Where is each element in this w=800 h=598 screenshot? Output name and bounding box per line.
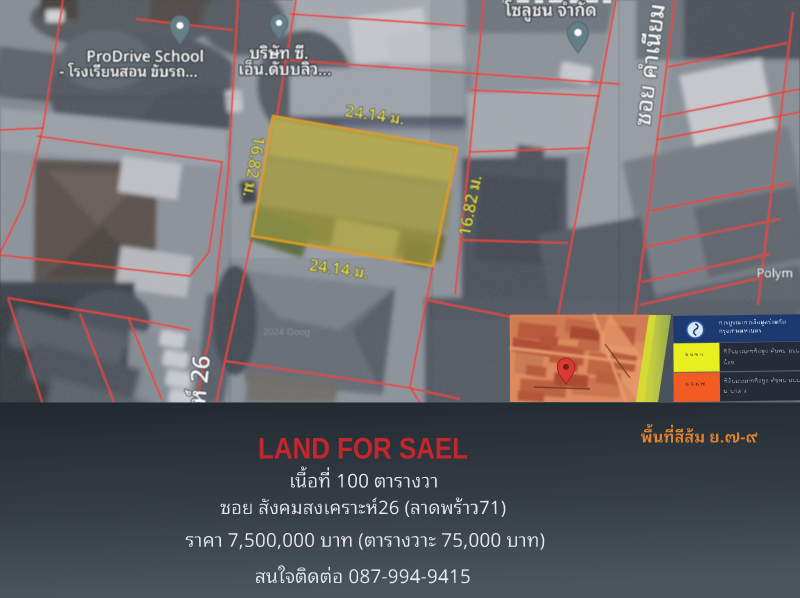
svg-text:2024 Goog: 2024 Goog: [263, 327, 310, 338]
svg-text:LAND FOR SAEL: LAND FOR SAEL: [258, 433, 468, 466]
